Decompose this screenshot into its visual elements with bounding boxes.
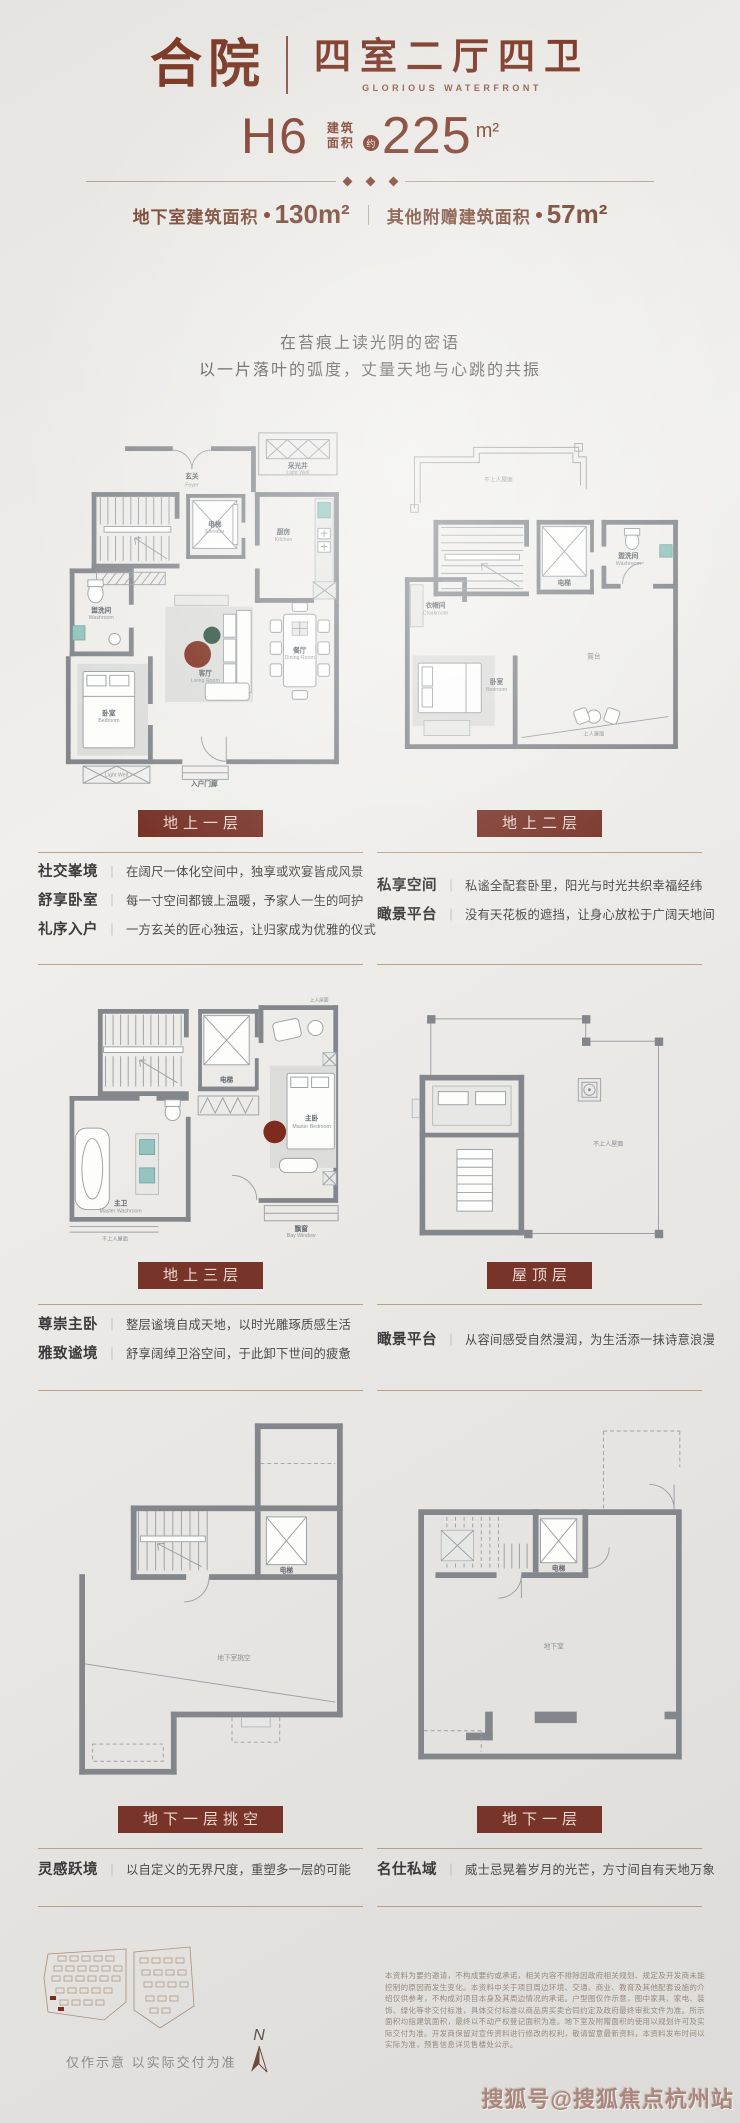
room-label-en: Light Well [286, 470, 309, 476]
estate-type-title: 合院 [150, 39, 266, 91]
header: 合院 四室二厅四卫 GLORIOUS WATERFRONT H6 建筑 面积 约… [0, 36, 740, 230]
feature-separator: ｜ [445, 1326, 457, 1355]
divider-line-right [405, 181, 655, 182]
divider-line [38, 964, 363, 965]
room-label-en: Bedroom [98, 719, 120, 725]
room-label: 餐厅 [293, 646, 307, 655]
feature-separator: ｜ [445, 872, 457, 901]
floor-card-l2: 不上人屋面 [377, 398, 702, 965]
floor-label: 屋顶层 [487, 1262, 592, 1289]
master-bath-fixtures-icon [75, 1100, 180, 1210]
dot-icon [536, 212, 542, 218]
room-label-en: Dining Room [285, 656, 316, 662]
area-label-line1: 建筑 [327, 121, 355, 136]
watermark: 搜狐号@搜狐焦点杭州站 [482, 2082, 734, 2114]
room-label-en: Kitchen [275, 537, 293, 543]
feature-desc: 没有天花板的遮挡，让身心放松于广阔天地间 [465, 901, 715, 930]
poem-line-2: 以一片落叶的弧度，丈量天地与心跳的共振 [0, 357, 740, 384]
feature-desc: 私谧全配套卧里，阳光与时光共织幸福经纬 [465, 872, 702, 901]
room-label: 盥洗间 [91, 606, 111, 615]
layout-title-block: 四室二厅四卫 GLORIOUS WATERFRONT [314, 38, 590, 93]
floorplan-b1-svg: 电梯 地下室 [382, 1410, 697, 1782]
floor-label: 地下一层挑空 [118, 1806, 283, 1833]
walls [79, 1423, 342, 1774]
floorplan-l2: 不上人屋面 [377, 398, 702, 800]
basement-area-label: 地下室建筑面积 [133, 203, 259, 228]
slant-line [85, 1664, 335, 1702]
stair-structure [412, 1075, 524, 1236]
room-label: 主卫 [114, 1198, 128, 1207]
floor-label: 地下一层 [477, 1806, 602, 1833]
approx-badge: 约 [363, 135, 379, 151]
skylight-icon [578, 1078, 600, 1100]
feature-separator: ｜ [445, 1856, 457, 1885]
divider-line [38, 1906, 363, 1907]
divider-line [377, 1304, 702, 1305]
staircase-icon [138, 1511, 207, 1570]
room-label: 入户门廊 [190, 780, 218, 788]
feature-row: 雅致谧境 ｜ 舒享阔绰卫浴空间，于此卸下世间的疲惫 [38, 1340, 363, 1369]
feature-list: 灵感跃境 ｜ 以自定义的无界尺度，重塑多一层的可能 [38, 1849, 363, 1891]
room-label: 厨房 [277, 528, 291, 537]
floors-row-2: 电梯 [0, 982, 740, 1391]
room-label-en: Living Room [191, 679, 221, 685]
divider-line [38, 1304, 363, 1305]
siteplan-units [52, 1956, 188, 2013]
disclaimer-text: 本资料为要约邀请，不构成要约或承诺，相关内容不排除因政府相关规划、规定及开发商未… [385, 1970, 705, 2051]
compass-icon: N [246, 2026, 272, 2076]
unit-name: H6 [241, 111, 309, 161]
room-label: 电梯 [558, 578, 572, 587]
feature-list: 社交峯境 ｜ 在阔尺一体化空间中，独享或欢宴皆成风景 舒享卧室 ｜ 每一寸空间都… [38, 853, 363, 949]
siteplan-highlight-units [50, 1996, 64, 2011]
feature-separator: ｜ [106, 1340, 118, 1369]
floorplan-l1-svg: 玄关 Foyer 采光井 Light Well 电梯 Elevator 厨房 K… [43, 410, 358, 787]
floorplan-b1-void-svg: 电梯 地下室挑空 [43, 1410, 358, 1782]
feature-list: 瞰景平台 ｜ 从容间感受自然漫润，为生活添一抹诗意浪漫 [377, 1305, 702, 1375]
kitchen-counter-icon [313, 499, 336, 599]
feature-desc: 整层谧境自成天地，以时光雕琢质感生活 [126, 1311, 351, 1340]
bedroom-bed-icon [413, 656, 495, 736]
feature-separator: ｜ [106, 916, 118, 945]
room-label: 采光井 [287, 462, 308, 471]
feature-term: 名仕私域 [377, 1856, 437, 1885]
staircase-icon [441, 1517, 527, 1569]
floorplan-l2-svg: 不上人屋面 [382, 434, 697, 763]
feature-desc: 舒享阔绰卫浴空间，于此卸下世间的疲惫 [126, 1340, 351, 1369]
poem: 在苔痕上读光阴的密语 以一片落叶的弧度，丈量天地与心跳的共振 [0, 330, 740, 384]
feature-term: 雅致谧境 [38, 1340, 98, 1369]
bonus-area-value: 57m² [547, 199, 608, 230]
floor-label: 地上二层 [477, 810, 602, 837]
sub-area-row: 地下室建筑面积 130m² 其他附赠建筑面积 57m² [0, 199, 740, 230]
room-label: 玄关 [185, 472, 199, 481]
room-label: 露台 [587, 652, 601, 661]
feature-list: 名仕私域 ｜ 威士忌晃着岁月的光芒，方寸间自有天地万象 [377, 1849, 702, 1891]
floor-card-roof: 不上人屋面 屋顶层 瞰景平台 ｜ 从容间感受自然漫润，为生活添一抹诗意浪漫 [377, 982, 702, 1391]
feature-desc: 一方玄关的匠心独运，让归家成为优雅的仪式 [126, 916, 376, 945]
feature-separator: ｜ [106, 1311, 118, 1340]
feature-row: 舒享卧室 ｜ 每一寸空间都镀上温暖，予家人一生的呵护 [38, 887, 363, 916]
bonus-area-label: 其他附赠建筑面积 [387, 203, 531, 228]
dashed-courtyard [603, 1431, 679, 1509]
floor-card-b1: 电梯 地下室 地下一层 名仕私域 ｜ 威士忌晃着岁月的光芒，方寸间自有天地万象 [377, 1396, 702, 1907]
floor-label: 地上三层 [138, 1262, 263, 1289]
door-arc-icon [498, 1575, 521, 1598]
poem-line-1: 在苔痕上读光阴的密语 [0, 330, 740, 357]
feature-separator: ｜ [106, 858, 118, 887]
title-divider [286, 36, 288, 94]
feature-term: 瞰景平台 [377, 1326, 437, 1355]
floor-card-b1-void: 电梯 地下室挑空 地下一层挑空 灵感跃境 ｜ [38, 1396, 363, 1907]
floorplan-roof-svg: 不上人屋面 [386, 989, 694, 1246]
feature-row: 瞰景平台 ｜ 从容间感受自然漫润，为生活添一抹诗意浪漫 [377, 1326, 702, 1355]
floors-row-3: 电梯 地下室挑空 地下一层挑空 灵感跃境 ｜ [0, 1396, 740, 1907]
ornament-divider [86, 178, 654, 185]
floors-row-1: 玄关 Foyer 采光井 Light Well 电梯 Elevator 厨房 K… [0, 398, 740, 965]
area-unit: m² [476, 114, 499, 143]
feature-row: 私享空间 ｜ 私谧全配套卧里，阳光与时光共织幸福经纬 [377, 872, 702, 901]
elevator-icon: 电梯 [203, 1015, 248, 1083]
feature-row: 灵感跃境 ｜ 以自定义的无界尺度，重塑多一层的可能 [38, 1856, 363, 1885]
feature-separator: ｜ [106, 1856, 118, 1885]
room-label: 电梯 [219, 1075, 233, 1084]
room-label-en: Bedroom [486, 687, 508, 693]
feature-row: 名仕私域 ｜ 威士忌晃着岁月的光芒，方寸间自有天地万象 [377, 1856, 702, 1885]
siteplan-map [38, 1944, 198, 2044]
floorplan-l1: 玄关 Foyer 采光井 Light Well 电梯 Elevator 厨房 K… [38, 398, 363, 800]
divider-line [38, 1390, 363, 1391]
room-label: 飘窗 [294, 1224, 308, 1233]
feature-term: 瞰景平台 [377, 901, 437, 930]
floorplan-roof: 不上人屋面 [377, 982, 702, 1252]
floorplan-l3-svg: 电梯 [45, 992, 357, 1243]
room-label: 电梯 [208, 520, 222, 529]
room-label-en: Master Washroom [99, 1208, 141, 1214]
feature-term: 礼序入户 [38, 916, 98, 945]
floor-card-l1: 玄关 Foyer 采光井 Light Well 电梯 Elevator 厨房 K… [38, 398, 363, 965]
elevator-icon [542, 527, 586, 577]
feature-term: 私享空间 [377, 872, 437, 901]
feature-term: 尊崇主卧 [38, 1311, 98, 1340]
room-label: 卧室 [102, 709, 116, 718]
closet-hatch-icon [198, 1096, 259, 1115]
room-label: 上人屋面 [309, 996, 328, 1003]
feature-row: 礼序入户 ｜ 一方玄关的匠心独运，让归家成为优雅的仪式 [38, 916, 363, 945]
feature-desc: 威士忌晃着岁月的光芒，方寸间自有天地万象 [465, 1856, 715, 1885]
cloakroom-wardrobe-icon [411, 585, 423, 627]
area-label: 建筑 面积 [327, 121, 355, 151]
room-label-en: Bay Window [286, 1233, 315, 1239]
room-label-en: Elevator [205, 530, 224, 536]
floor-label: 地上一层 [138, 810, 263, 837]
elevator-icon: 电梯 [266, 1517, 306, 1574]
diamond-icon [342, 177, 352, 187]
room-label: 电梯 [280, 1565, 294, 1574]
feature-term: 灵感跃境 [38, 1856, 98, 1885]
divider-line [377, 1848, 702, 1849]
feature-separator: ｜ [106, 887, 118, 916]
room-label: 盥洗间 [618, 551, 638, 560]
divider-line [377, 852, 702, 853]
feature-desc: 每一寸空间都镀上温暖，予家人一生的呵护 [126, 887, 363, 916]
staircase-icon [100, 496, 171, 561]
feature-row: 社交峯境 ｜ 在阔尺一体化空间中，独享或欢宴皆成风景 [38, 858, 363, 887]
floorplan-b1: 电梯 地下室 [377, 1396, 702, 1796]
room-label: 不上人屋面 [593, 1139, 623, 1147]
feature-separator: ｜ [445, 901, 457, 930]
room-label: 电梯 [552, 1563, 566, 1572]
room-label: 地下室挑空 [217, 1653, 251, 1662]
area-label-line2: 面积 [327, 136, 355, 151]
room-label: 不上人屋面 [101, 1234, 127, 1242]
feature-desc: 从容间感受自然漫润，为生活添一抹诗意浪漫 [465, 1326, 715, 1355]
room-label: 不上人屋面 [484, 476, 513, 484]
feature-desc: 在阔尺一体化空间中，独享或欢宴皆成风景 [126, 858, 363, 887]
english-subtitle: GLORIOUS WATERFRONT [362, 83, 542, 93]
room-label-en: Washroom [89, 616, 115, 622]
floorplan-l3: 电梯 [38, 982, 363, 1252]
diamond-icon [388, 177, 398, 187]
foyer-doors-icon [173, 451, 211, 470]
room-label: 地下室 [544, 1641, 564, 1650]
feature-list: 尊崇主卧 ｜ 整层谧境自成天地，以时光雕琢质感生活 雅致谧境 ｜ 舒享阔绰卫浴空… [38, 1305, 363, 1375]
room-label: Light Well [105, 773, 128, 779]
divider-line [377, 1906, 702, 1907]
dot-icon [264, 212, 270, 218]
room-label: 卧室 [490, 677, 504, 686]
room-label: 客厅 [198, 669, 213, 678]
divider-line [38, 852, 363, 853]
divider-line [377, 964, 702, 965]
room-label: 衣帽间 [425, 601, 445, 610]
floor-card-l3: 电梯 [38, 982, 363, 1391]
title-row: 合院 四室二厅四卫 GLORIOUS WATERFRONT [0, 36, 740, 94]
room-label-en: Cloakroom [423, 611, 449, 617]
bay-window-icon [264, 1205, 338, 1220]
entry-door-icon [182, 737, 228, 780]
divider-line [377, 1390, 702, 1391]
elevator-icon: 电梯 [540, 1519, 576, 1573]
room-label: 上人屋面 [583, 730, 604, 738]
room-label-en: Washroom [616, 561, 642, 567]
floorplan-b1-void: 电梯 地下室挑空 [38, 1396, 363, 1796]
area-value: 225 [382, 110, 472, 162]
feature-row: 瞰景平台 ｜ 没有天花板的遮挡，让身心放松于广阔天地间 [377, 901, 702, 930]
basement-area-value: 130m² [275, 199, 350, 230]
room-label-en: Foyer [185, 483, 199, 489]
feature-term: 舒享卧室 [38, 887, 98, 916]
door-arc-icon [184, 1577, 209, 1602]
door-arc-icon [588, 1547, 609, 1568]
living-room-furniture-icon [165, 596, 253, 703]
feature-term: 社交峯境 [38, 858, 98, 887]
feature-desc: 以自定义的无界尺度，重塑多一层的可能 [126, 1856, 351, 1885]
poster-page: 合院 四室二厅四卫 GLORIOUS WATERFRONT H6 建筑 面积 约… [0, 0, 740, 2123]
room-label-en: Master Bedroom [292, 1124, 330, 1130]
diamond-icon [365, 177, 375, 187]
room-label: 主卧 [304, 1113, 318, 1122]
divider-line-left [86, 181, 336, 182]
unit-area-row: H6 建筑 面积 约 225 m² [0, 110, 740, 162]
roof-outline: 不上人屋面 [411, 444, 587, 513]
siteplan-outlines [44, 1947, 194, 2028]
layout-title: 四室二厅四卫 [314, 38, 590, 75]
sub-divider [368, 205, 369, 225]
window-wells [93, 1717, 280, 1761]
divider-line [38, 1848, 363, 1849]
compass-letter: N [253, 2027, 265, 2044]
roof-edge-icon [69, 1226, 158, 1232]
feature-row: 尊崇主卧 ｜ 整层谧境自成天地，以时光雕琢质感生活 [38, 1311, 363, 1340]
siteplan-caption: 仅作示意 以实际交付为准 [66, 2052, 237, 2071]
staircase-icon [103, 1014, 182, 1086]
feature-list: 私享空间 ｜ 私谧全配套卧里，阳光与时光共织幸福经纬 瞰景平台 ｜ 没有天花板的… [377, 853, 702, 949]
